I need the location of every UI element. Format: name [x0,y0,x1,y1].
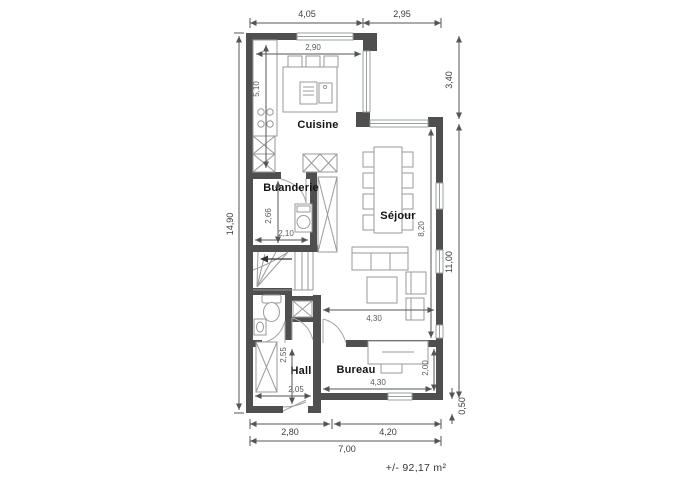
room-label-cuisine: Cuisine [297,119,338,131]
tall-storage-cabinet [318,177,337,252]
stairs [253,252,313,290]
wall-right-2 [436,209,443,250]
window-notch-east [363,51,370,112]
dim-cuisine-h: 5,10 [252,81,261,97]
dim-hall-w: 2,05 [288,385,304,394]
tall-cabinet-1 [253,136,275,154]
wall-right-1 [436,122,443,183]
room-label-sejour: Séjour [380,210,416,222]
dim-left: 14,90 [225,213,235,236]
entry-door [283,400,306,411]
wall-bureau-bottom-1 [321,393,388,400]
washbasin-icon [254,319,266,335]
dim-top-left: 4,05 [298,9,316,19]
dim-right-lower: 0,50 [457,397,467,415]
dining-chair [363,152,374,167]
window-kitchen-top [297,33,353,40]
dim-buanderie-h: 2,66 [264,208,273,224]
wall-buanderie-top-2 [306,172,310,179]
sofa [352,247,408,270]
bar-stool [288,56,302,67]
bar-stool [306,56,320,67]
wall-hall-bottom-1 [246,406,283,413]
room-label-bureau: Bureau [336,364,375,376]
dim-bottom-total: 7,00 [338,444,356,454]
wall-buanderie-bottom [246,245,322,252]
dim-buanderie-w: 2,10 [278,229,294,238]
dim-bottom-left: 2,80 [281,427,299,437]
window-sejour-3 [436,325,443,338]
dining-chair [363,194,374,209]
wc [254,295,312,335]
coffee-table [367,277,397,303]
wall-right-4 [436,338,443,400]
window-notch-south [370,120,428,127]
bureau [368,341,428,373]
armchair [406,298,424,320]
window-sejour-2 [436,250,443,273]
dim-sejour-h: 8,20 [417,221,426,237]
desk [368,341,428,373]
dim-sejour-w: 4,30 [366,314,382,323]
bar-stool [324,56,338,67]
wall-right-3 [436,273,443,325]
room-label-hall: Hall [291,365,312,377]
door-bureau [323,319,346,343]
dim-hall-h: 2,55 [279,347,288,363]
wall-closet-bottom [292,317,313,322]
wall-bureau-bottom-2 [412,393,443,400]
kitchen-island [283,56,338,112]
dining-chair [363,173,374,188]
sejour [352,147,426,320]
toilet-icon [262,295,281,322]
dining-chair [402,173,413,188]
dim-cuisine-w: 2,90 [305,43,321,52]
tall-cabinet-double [303,154,337,172]
floorplan-page: Cuisine Buanderie Séjour Hall Bureau 4,0… [0,0,700,491]
dim-bureau-h: 2,00 [421,360,430,376]
window-sejour-1 [436,183,443,209]
dim-bureau-w: 4,30 [370,378,386,387]
tall-cabinet-2 [253,154,275,172]
dining-chair [363,215,374,230]
wardrobe-icon [256,342,277,392]
closet-icon [293,301,312,317]
area-label: +/- 92,17 m² [386,462,447,474]
armchair [406,272,426,294]
hall [256,342,277,392]
desk-chair [381,364,402,373]
dim-bottom-right: 4,20 [379,427,397,437]
wall-closet-top [292,296,313,301]
floorplan-drawing: Cuisine Buanderie Séjour Hall Bureau 4,0… [0,0,700,491]
washing-machine-icon [295,204,312,232]
room-label-buanderie: Buanderie [263,182,319,194]
dining-chair [402,194,413,209]
window-bureau [388,393,412,400]
dim-right-main: 11,00 [444,251,454,273]
dim-right-upper: 3,40 [444,71,454,89]
wall-buanderie-top-1 [246,172,281,179]
wall-stub-top-right [363,40,377,51]
dining-chair [402,152,413,167]
wall-wc-right [285,288,292,340]
wall-hall-bureau [313,295,321,413]
dim-top-right: 2,95 [393,9,411,19]
wall-stub-notch [356,112,370,127]
